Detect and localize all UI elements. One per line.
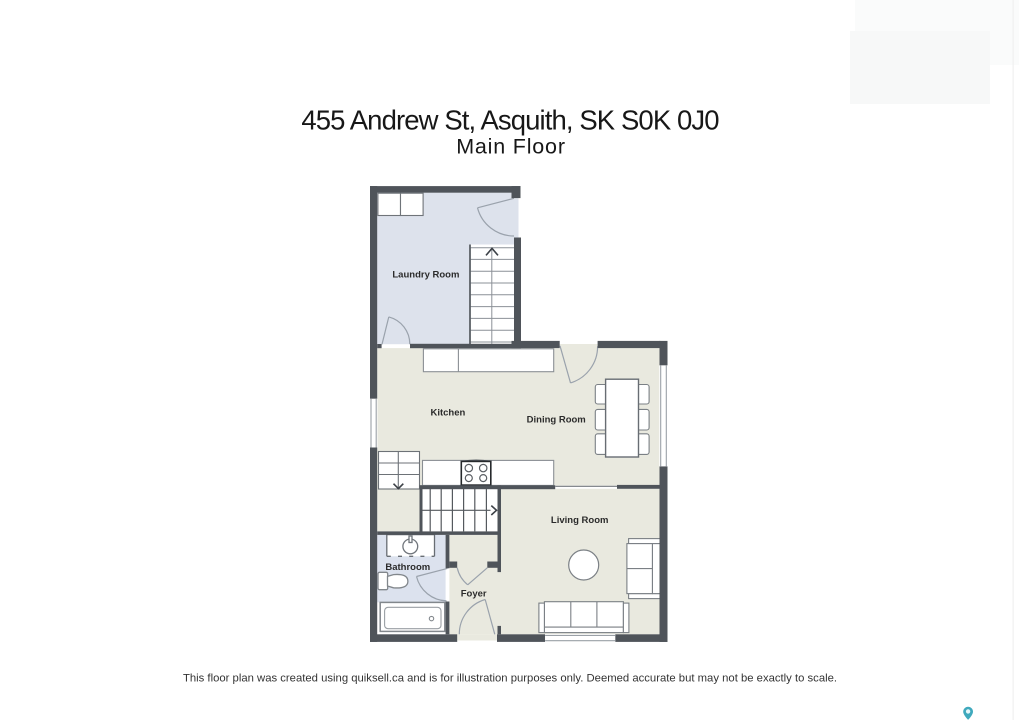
svg-text:This floor plan was created us: This floor plan was created using quikse… <box>183 672 837 684</box>
svg-text:Laundry Room: Laundry Room <box>392 269 459 280</box>
svg-text:455 Andrew St, Asquith, SK S0K: 455 Andrew St, Asquith, SK S0K 0J0 <box>301 104 719 135</box>
svg-text:Dining Room: Dining Room <box>527 414 586 425</box>
svg-text:Foyer: Foyer <box>461 589 487 600</box>
svg-text:Main Floor: Main Floor <box>456 134 566 158</box>
svg-text:Living Room: Living Room <box>551 515 609 526</box>
svg-text:Kitchen: Kitchen <box>430 407 465 418</box>
svg-text:Bathroom: Bathroom <box>385 562 430 573</box>
